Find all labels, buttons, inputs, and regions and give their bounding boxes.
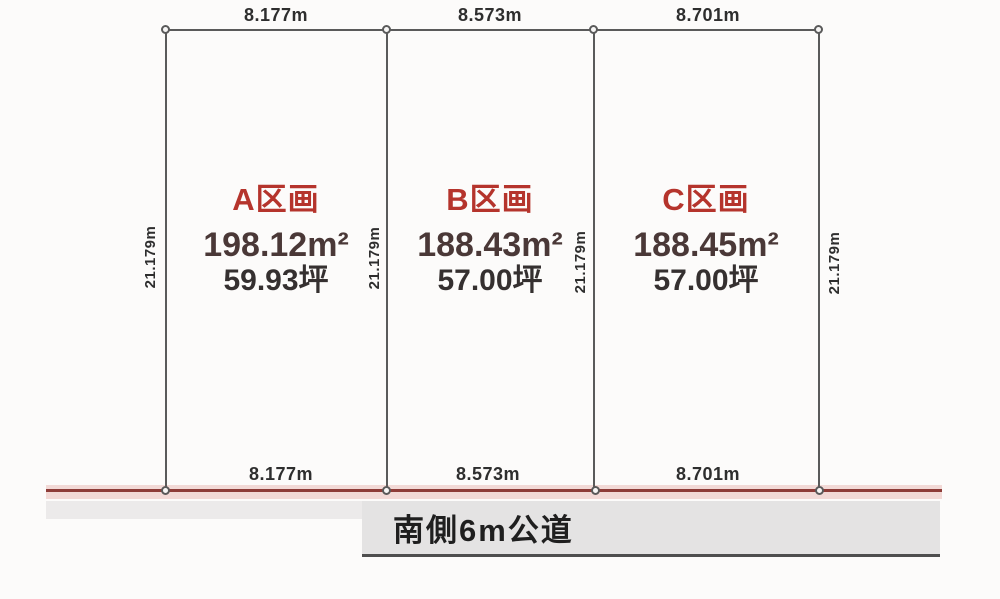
dimension-bottom-a: 8.177m — [211, 464, 351, 485]
dimension-top-b: 8.573m — [420, 5, 560, 26]
plot-c-area-m2: 188.45m² — [595, 226, 817, 264]
plot-b-name: B区画 — [379, 183, 601, 217]
road-strip-left — [46, 501, 364, 519]
plot-c-name: C区画 — [595, 183, 817, 217]
road-label: 南側6m公道 — [393, 505, 574, 550]
plot-a-name: A区画 — [165, 183, 387, 217]
north-boundary-line — [166, 29, 819, 31]
plot-a-area-m2: 198.12m² — [165, 226, 387, 264]
dimension-bottom-c: 8.701m — [638, 464, 778, 485]
road-boundary-line — [46, 489, 942, 492]
dimension-top-a: 8.177m — [206, 5, 346, 26]
dimension-top-c: 8.701m — [638, 5, 778, 26]
corner-marker — [382, 25, 391, 34]
east-boundary-line — [818, 29, 820, 491]
corner-marker — [591, 486, 600, 495]
land-plot-diagram: 南側6m公道 8.177m 8.573m 8.701m 8.177m 8.573… — [0, 0, 1000, 599]
corner-marker — [161, 25, 170, 34]
dimension-depth-west: 21.179m — [142, 215, 160, 299]
corner-marker — [161, 486, 170, 495]
road-boundary-glow — [46, 485, 942, 499]
plot-b-area-tsubo: 57.00坪 — [379, 264, 601, 298]
plot-a-info: A区画 198.12m² 59.93坪 — [165, 183, 387, 298]
plot-a-area-tsubo: 59.93坪 — [165, 264, 387, 298]
corner-marker — [815, 486, 824, 495]
plot-b-area-m2: 188.43m² — [379, 226, 601, 264]
plot-c-info: C区画 188.45m² 57.00坪 — [595, 183, 817, 298]
dimension-depth-east: 21.179m — [826, 221, 844, 305]
corner-marker — [589, 25, 598, 34]
dimension-bottom-b: 8.573m — [418, 464, 558, 485]
plot-c-area-tsubo: 57.00坪 — [595, 264, 817, 298]
plot-b-info: B区画 188.43m² 57.00坪 — [379, 183, 601, 298]
corner-marker — [382, 486, 391, 495]
corner-marker — [814, 25, 823, 34]
